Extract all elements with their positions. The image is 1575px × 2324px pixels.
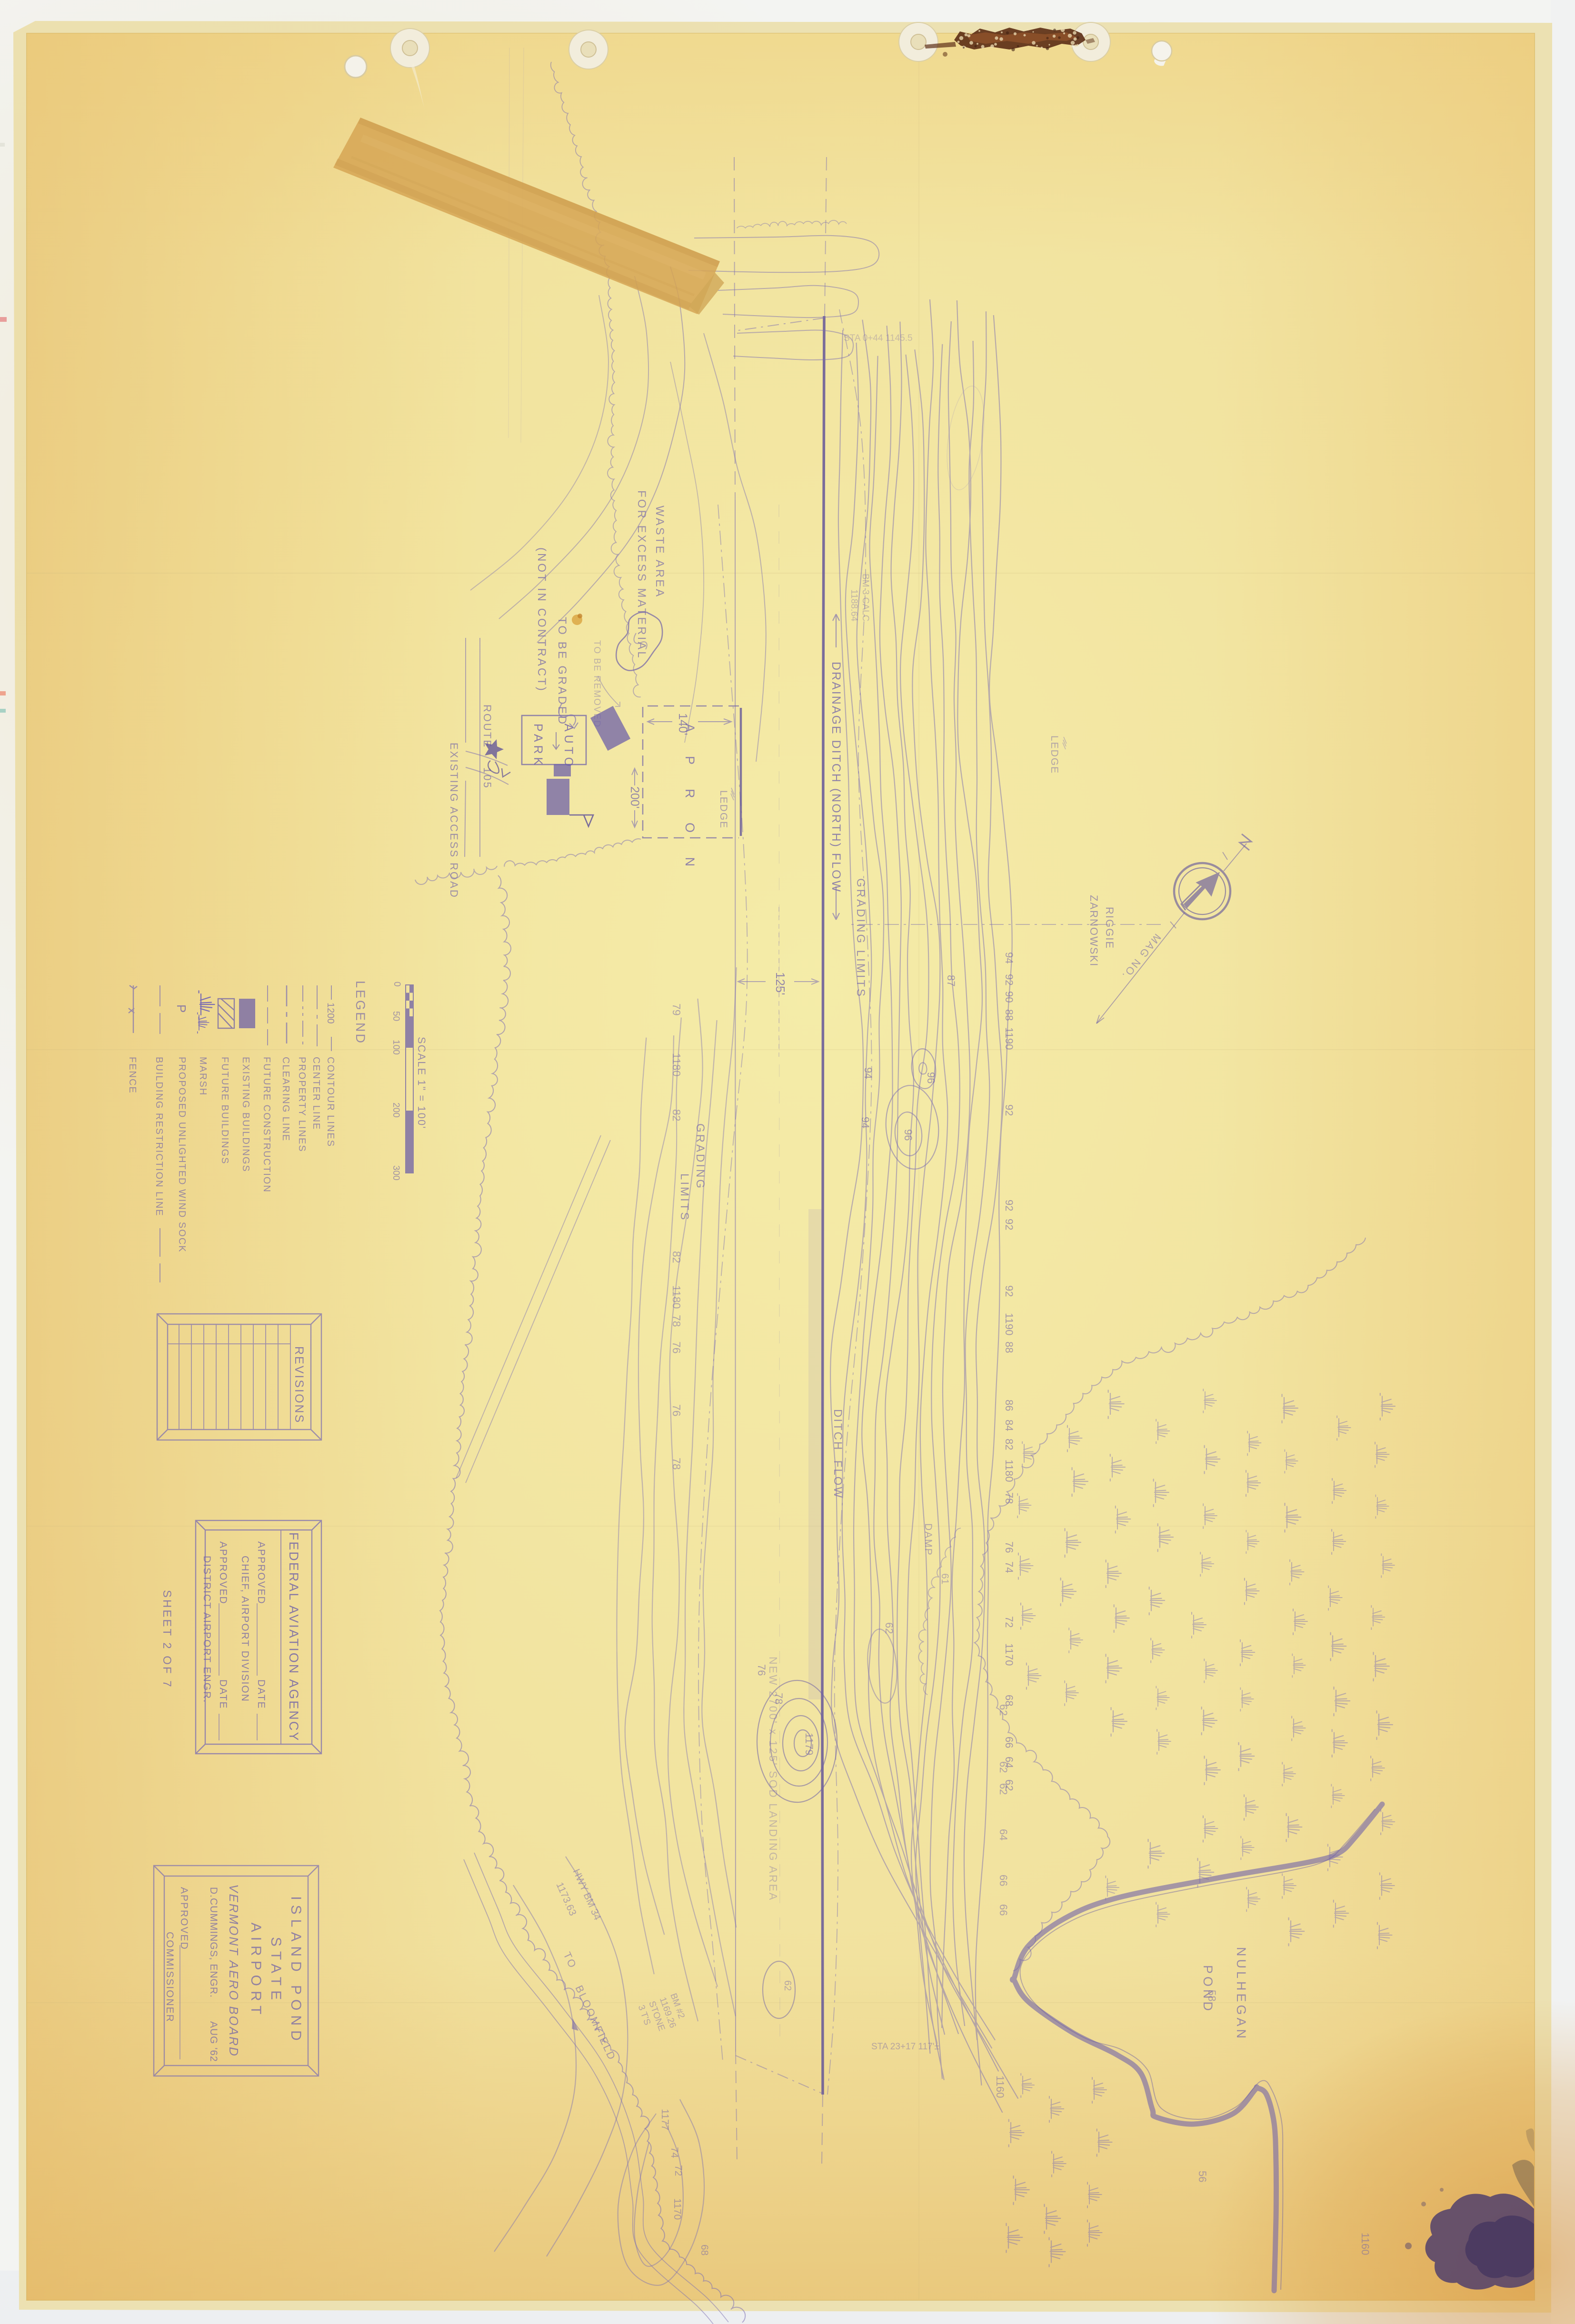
svg-text:76: 76: [670, 1341, 683, 1354]
svg-text:66: 66: [997, 1875, 1009, 1886]
svg-text:92: 92: [1003, 1219, 1015, 1230]
svg-text:76: 76: [756, 1664, 768, 1676]
svg-text:200': 200': [628, 786, 641, 808]
svg-text:62: 62: [997, 1761, 1009, 1773]
svg-text:74: 74: [1003, 1561, 1015, 1573]
svg-text:72: 72: [673, 2165, 684, 2176]
svg-text:125': 125': [773, 972, 787, 995]
svg-text:64: 64: [997, 1829, 1009, 1840]
svg-text:82: 82: [670, 1251, 683, 1263]
svg-text:140': 140': [676, 713, 689, 735]
svg-text:1188.64: 1188.64: [849, 589, 859, 622]
svg-text:CHIEF, AIRPORT DIVISION: CHIEF, AIRPORT DIVISION: [239, 1556, 250, 1702]
svg-text:300: 300: [391, 1165, 401, 1181]
svg-text:92: 92: [1003, 1200, 1015, 1211]
svg-text:0: 0: [392, 982, 402, 987]
svg-text:FENCE: FENCE: [127, 1057, 138, 1094]
svg-text:61: 61: [939, 1573, 950, 1584]
svg-text:SHEET 2 OF 7: SHEET 2 OF 7: [160, 1590, 173, 1689]
svg-text:GRADING LIMITS: GRADING LIMITS: [854, 878, 867, 998]
svg-text:1180: 1180: [670, 1053, 683, 1076]
svg-text:88: 88: [1003, 1341, 1015, 1353]
svg-text:LEDGE: LEDGE: [718, 790, 729, 829]
svg-text:SCALE 1" = 100': SCALE 1" = 100': [416, 1037, 428, 1129]
svg-text:APPROVED: APPROVED: [179, 1887, 189, 1950]
svg-text:REVISIONS: REVISIONS: [292, 1346, 306, 1424]
svg-text:BUILDING RESTRICTION LINE: BUILDING RESTRICTION LINE: [154, 1057, 164, 1217]
svg-text:CLEARING LINE: CLEARING LINE: [280, 1057, 291, 1142]
svg-text:1170: 1170: [1003, 1643, 1015, 1666]
svg-text:76: 76: [1003, 1541, 1015, 1553]
svg-text:PARK: PARK: [531, 724, 545, 768]
svg-text:D.CUMMINGS, ENGR.: D.CUMMINGS, ENGR.: [208, 1887, 219, 1998]
svg-text:(NOT IN CONTRACT): (NOT IN CONTRACT): [535, 547, 548, 693]
svg-text:LEGEND: LEGEND: [353, 981, 368, 1045]
svg-text:1190: 1190: [1003, 1027, 1015, 1050]
svg-text:DAMP: DAMP: [923, 1523, 934, 1556]
svg-text:1177: 1177: [659, 2109, 670, 2130]
svg-text:FUTURE BUILDINGS: FUTURE BUILDINGS: [219, 1057, 230, 1164]
svg-text:92: 92: [1003, 1104, 1015, 1116]
svg-text:72: 72: [1003, 1616, 1015, 1628]
svg-text:96: 96: [925, 1072, 937, 1083]
svg-text:66: 66: [1003, 1737, 1015, 1748]
svg-text:WASTE AREA: WASTE AREA: [653, 506, 666, 598]
svg-text:NULHEGAN: NULHEGAN: [1234, 1947, 1248, 2041]
svg-text:POND: POND: [1201, 1965, 1215, 2014]
svg-text:1160: 1160: [1359, 2233, 1371, 2255]
svg-text:AUTO: AUTO: [562, 724, 575, 770]
svg-text:APPROVED: APPROVED: [218, 1541, 229, 1605]
svg-text:96: 96: [902, 1129, 914, 1141]
svg-text:AUG '62: AUG '62: [208, 2021, 219, 2062]
svg-text:200: 200: [391, 1102, 401, 1118]
svg-text:COMMISSIONER: COMMISSIONER: [164, 1932, 175, 2023]
svg-text:CONTOUR LINES: CONTOUR LINES: [325, 1057, 336, 1147]
svg-text:EXISTING BUILDINGS: EXISTING BUILDINGS: [240, 1057, 251, 1172]
svg-text:BM 3 CALC: BM 3 CALC: [860, 574, 870, 621]
svg-text:1190: 1190: [1003, 1313, 1015, 1335]
svg-text:86: 86: [1003, 1400, 1015, 1411]
svg-text:PROPOSED UNLIGHTED WIND SOC: PROPOSED UNLIGHTED WIND SOCK: [177, 1057, 187, 1253]
svg-text:94: 94: [862, 1067, 874, 1079]
svg-text:DISTRICT AIRPORT ENGR.: DISTRICT AIRPORT ENGR.: [201, 1556, 212, 1703]
svg-text:1200: 1200: [325, 1003, 336, 1024]
svg-text:AIRPORT: AIRPORT: [248, 1923, 264, 2019]
svg-text:79: 79: [670, 1003, 683, 1016]
svg-text:MARSH: MARSH: [198, 1057, 208, 1096]
svg-text:78: 78: [670, 1458, 683, 1470]
svg-text:50: 50: [391, 1011, 401, 1021]
svg-text:62: 62: [997, 1783, 1009, 1795]
svg-text:FOR EXCESS MATERIAL: FOR EXCESS MATERIAL: [635, 490, 648, 660]
svg-text:100: 100: [391, 1040, 401, 1055]
svg-text:1179: 1179: [803, 1733, 815, 1755]
svg-text:84: 84: [1003, 1420, 1015, 1431]
svg-text:78: 78: [773, 1693, 785, 1704]
svg-text:1170: 1170: [672, 2198, 683, 2220]
svg-text:STA 0+44 1145.5: STA 0+44 1145.5: [844, 333, 913, 343]
svg-text:82: 82: [670, 1109, 683, 1122]
svg-text:62: 62: [782, 1980, 793, 1991]
svg-text:1180: 1180: [670, 1285, 683, 1309]
svg-text:APPROVED: APPROVED: [256, 1541, 267, 1605]
svg-text:68: 68: [699, 2245, 710, 2255]
svg-text:A P R O N: A P R O N: [683, 724, 697, 877]
svg-text:62: 62: [883, 1622, 895, 1634]
svg-text:DRAINAGE DITCH (NORTH) FLOW: DRAINAGE DITCH (NORTH) FLOW: [829, 662, 843, 893]
svg-text:P: P: [174, 1004, 189, 1013]
svg-text:88: 88: [1003, 1009, 1015, 1021]
svg-text:1180: 1180: [1003, 1460, 1015, 1482]
svg-text:94: 94: [859, 1117, 871, 1128]
svg-text:STA 23+17 117'±: STA 23+17 117'±: [871, 2042, 939, 2052]
svg-text:78: 78: [670, 1315, 683, 1327]
svg-text:CENTER LINE: CENTER LINE: [311, 1057, 321, 1130]
svg-text:92: 92: [1003, 1285, 1015, 1297]
svg-text:GRADING: GRADING: [694, 1123, 707, 1190]
svg-text:TO BE REMOVED: TO BE REMOVED: [592, 640, 602, 728]
svg-text:ROUTE: ROUTE: [481, 705, 493, 748]
svg-text:1160: 1160: [994, 2076, 1006, 2098]
svg-text:62: 62: [997, 1704, 1009, 1716]
svg-text:82: 82: [1003, 1439, 1015, 1450]
svg-text:RIGGIE: RIGGIE: [1104, 907, 1116, 949]
svg-text:TO BE GRADED: TO BE GRADED: [556, 617, 568, 726]
svg-text:ISLAND POND: ISLAND POND: [288, 1896, 304, 2045]
svg-text:LEDGE: LEDGE: [1049, 735, 1060, 774]
svg-text:66: 66: [997, 1904, 1009, 1916]
svg-text:STATE: STATE: [268, 1937, 284, 2005]
svg-text:FEDERAL AVIATION AGENCY: FEDERAL AVIATION AGENCY: [287, 1532, 301, 1742]
svg-text:94: 94: [1003, 952, 1015, 963]
svg-text:FUTURE CONSTRUCTION: FUTURE CONSTRUCTION: [261, 1057, 272, 1193]
svg-text:92: 92: [1003, 974, 1015, 985]
svg-text:56: 56: [1196, 2171, 1208, 2182]
svg-text:VERMONT AERO BOARD: VERMONT AERO BOARD: [227, 1884, 241, 2057]
svg-text:74: 74: [669, 2147, 680, 2158]
svg-text:87: 87: [945, 975, 957, 986]
svg-text:DATE: DATE: [218, 1679, 229, 1709]
svg-text:76: 76: [670, 1404, 683, 1417]
svg-text:DATE: DATE: [256, 1679, 267, 1709]
svg-text:ZARNOWSKI: ZARNOWSKI: [1088, 895, 1100, 967]
svg-text:PROPERTY LINES: PROPERTY LINES: [297, 1057, 307, 1152]
svg-text:90: 90: [1003, 991, 1015, 1003]
